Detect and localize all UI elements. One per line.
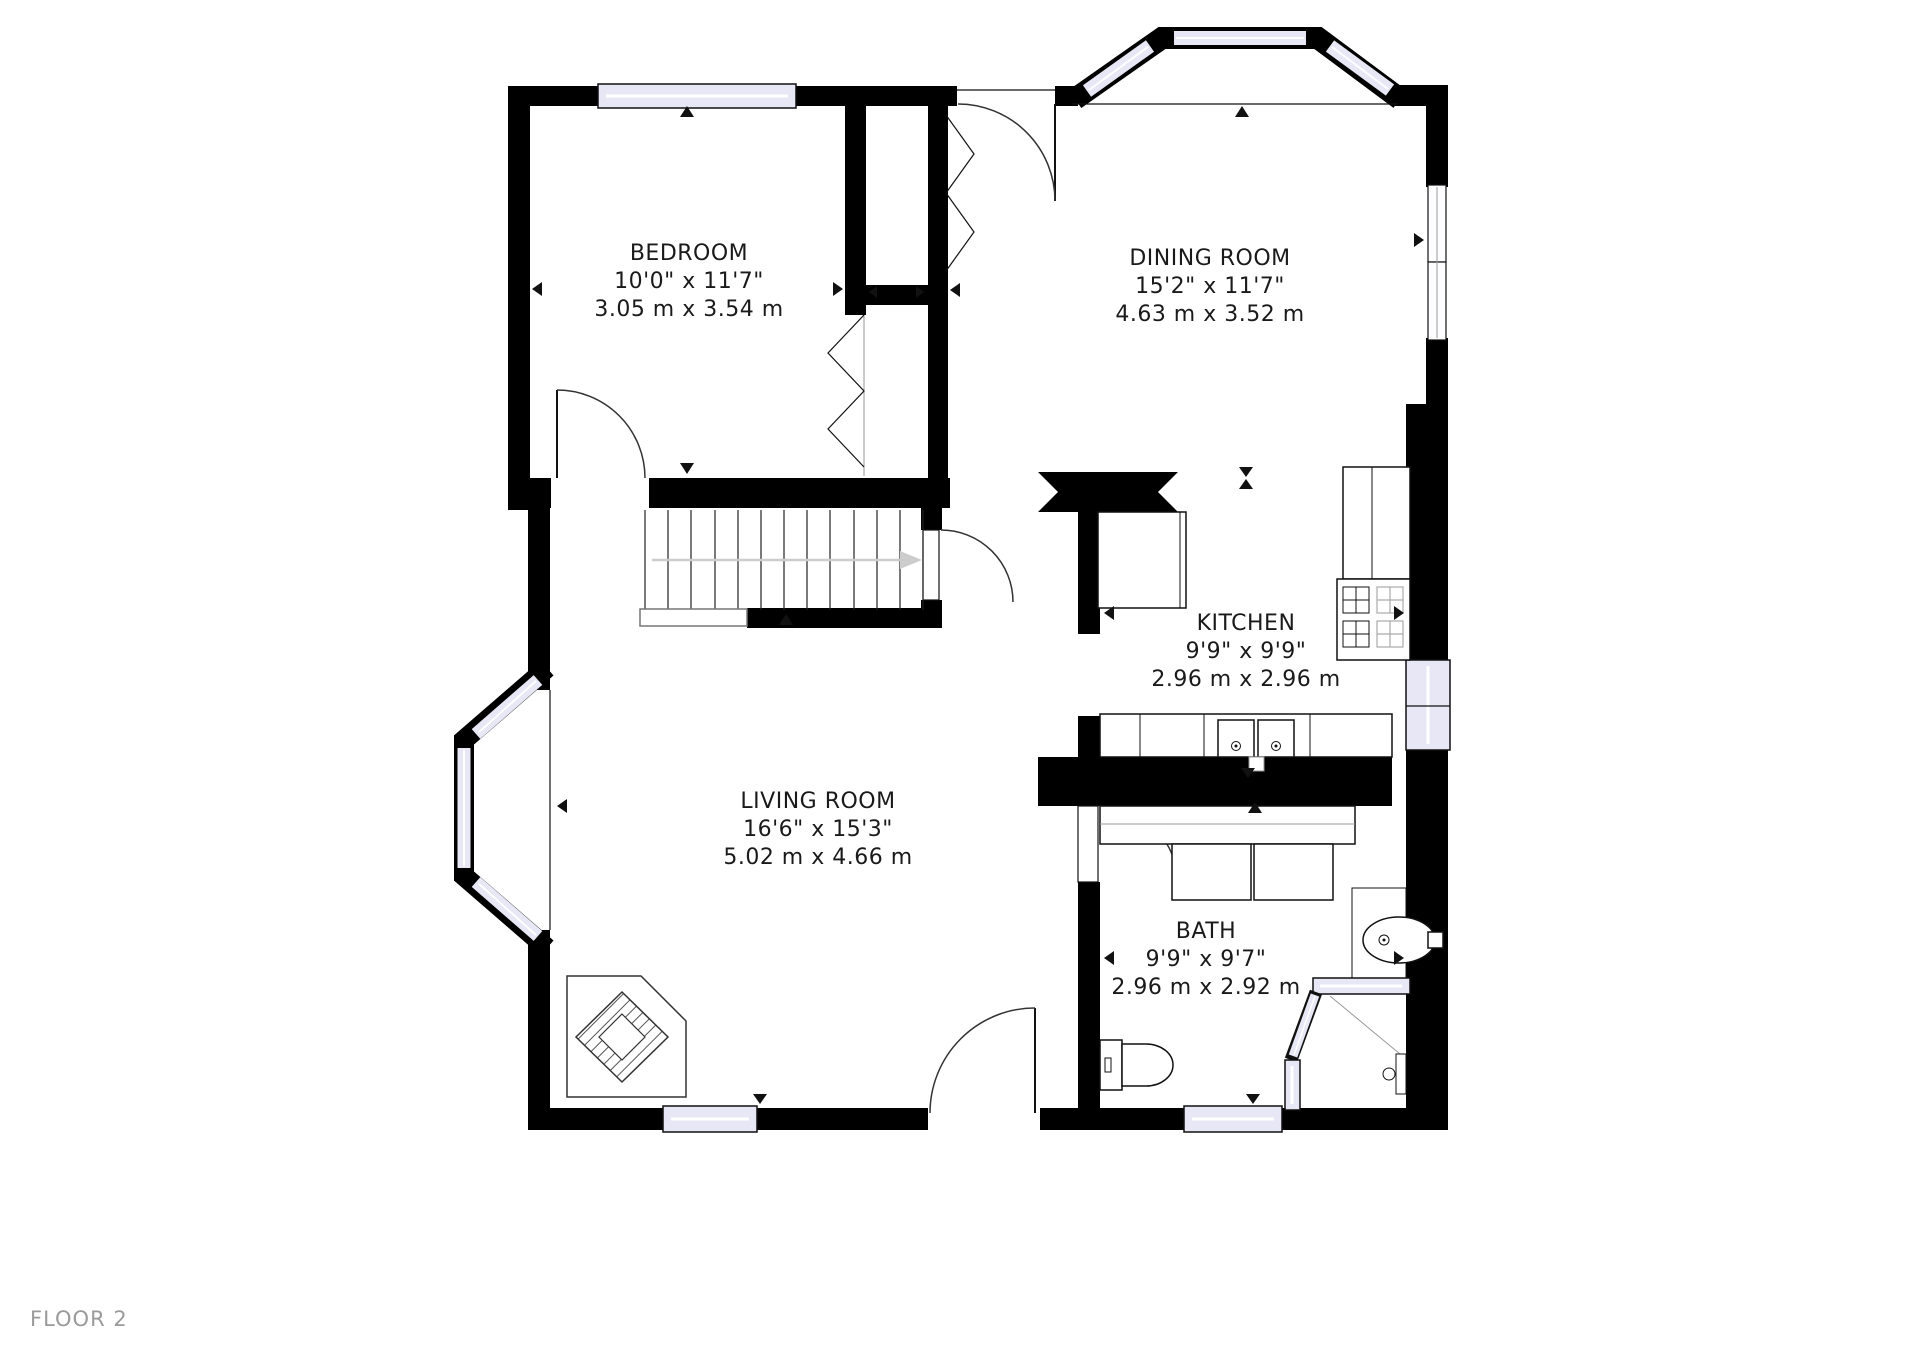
wall-segment [1078, 882, 1100, 1130]
wall-segment [921, 600, 942, 628]
dimension-marker [950, 283, 960, 297]
room-label-kitchen: KITCHEN [1197, 611, 1296, 636]
window-pane-line [478, 883, 536, 935]
floor-plan-page: BEDROOM 10'0" x 11'7" 3.05 m x 3.54 m DI… [0, 0, 1920, 1358]
dimension-marker [753, 1094, 767, 1104]
wall-segment [747, 608, 921, 628]
dimension-marker [1104, 951, 1114, 965]
shower-knob [1383, 1068, 1395, 1080]
living-bay-window [464, 668, 550, 948]
room-dim-imperial: 9'9" x 9'9" [1186, 639, 1307, 664]
dimension-marker [1414, 233, 1424, 247]
wall-segment [1038, 757, 1392, 806]
stove-body [1337, 579, 1410, 660]
wall-segment [528, 490, 550, 690]
door-swing-arc [557, 390, 645, 478]
faucet-icon [1428, 932, 1443, 948]
sink-drain-dot [1383, 939, 1386, 942]
bedroom-door-opening [551, 476, 649, 510]
wall-segment [528, 930, 550, 1130]
shower-icon [1285, 978, 1410, 1110]
vanity-cabinet [1254, 844, 1333, 900]
sink-drain-dot [1235, 745, 1238, 748]
dimension-marker [1239, 479, 1253, 489]
room-dim-imperial: 10'0" x 11'7" [614, 269, 764, 294]
toilet-bowl [1122, 1044, 1173, 1086]
room-label-living-room: LIVING ROOM [740, 789, 895, 814]
room-label-bath: BATH [1176, 919, 1236, 944]
floor-number-label: FLOOR 2 [30, 1307, 128, 1331]
room-label-bedroom: BEDROOM [630, 241, 748, 266]
fireplace-icon [567, 976, 686, 1097]
stair-landing [640, 609, 747, 626]
bifold-door-icon [828, 315, 864, 467]
sink-basin [1258, 720, 1294, 757]
stove-icon [1337, 579, 1410, 660]
dimension-marker [833, 282, 843, 296]
dimension-marker [680, 463, 694, 474]
wall-segment [1426, 338, 1448, 404]
dining-bay-window [1072, 38, 1400, 104]
door-icon [1078, 806, 1098, 882]
room-dim-imperial: 15'2" x 11'7" [1135, 274, 1285, 299]
window-pane-line [1089, 47, 1148, 90]
vanity-icon [1100, 806, 1355, 900]
stairs-arrow-head [900, 551, 922, 569]
vanity-cabinet [1172, 844, 1251, 900]
wall-segment [1406, 404, 1448, 664]
dimension-marker [1235, 106, 1249, 117]
wall-segment [845, 285, 948, 305]
dimension-marker [1246, 1094, 1260, 1104]
room-dim-metric: 2.96 m x 2.96 m [1151, 667, 1340, 692]
wall-segment [1426, 92, 1448, 187]
vanity-counter [1100, 806, 1355, 844]
shower-head [1396, 1054, 1406, 1094]
dimension-marker [557, 799, 567, 813]
refrigerator-icon [1098, 512, 1186, 608]
room-dim-metric: 2.96 m x 2.92 m [1111, 975, 1300, 1000]
room-dim-imperial: 16'6" x 15'3" [743, 817, 893, 842]
toilet-icon [1100, 1040, 1173, 1090]
wall-segment [845, 102, 866, 315]
room-dim-metric: 5.02 m x 4.66 m [723, 845, 912, 870]
room-dim-imperial: 9'9" x 9'7" [1146, 947, 1267, 972]
shower-swing-line [1330, 996, 1400, 1054]
door-swing-arc [941, 530, 1013, 602]
wall-segment [1078, 512, 1100, 634]
counter-icon [1343, 467, 1410, 579]
wall-segment [508, 86, 530, 510]
wall-segment [1078, 716, 1100, 757]
room-dim-metric: 3.05 m x 3.54 m [594, 297, 783, 322]
floor-plan: BEDROOM 10'0" x 11'7" 3.05 m x 3.54 m DI… [0, 0, 1920, 1358]
door-icon [923, 530, 939, 600]
bifold-door-icon [946, 115, 974, 271]
dimension-marker [1239, 467, 1253, 477]
room-dim-metric: 4.63 m x 3.52 m [1115, 302, 1304, 327]
sink-drain-dot [1275, 745, 1278, 748]
wall-segment [1038, 472, 1178, 512]
exterior-door-opening [928, 1106, 1040, 1132]
window-pane-line [478, 681, 536, 733]
wall-segment [921, 508, 942, 530]
room-label-dining-room: DINING ROOM [1129, 246, 1290, 271]
door-swing-arc [930, 1008, 1035, 1113]
dimension-marker [532, 282, 542, 296]
sink-basin [1218, 720, 1254, 757]
